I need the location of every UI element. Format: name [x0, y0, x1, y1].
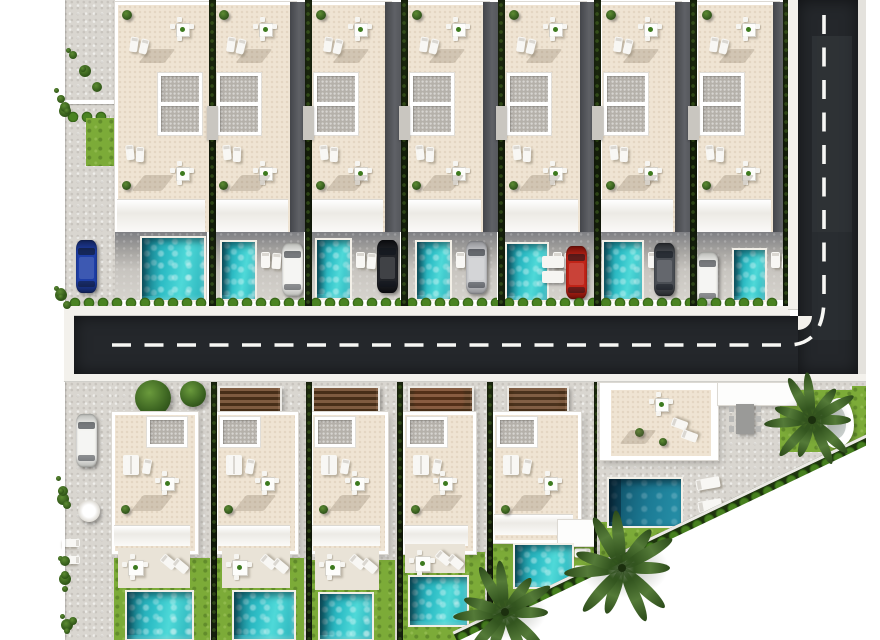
sun-lounger [680, 429, 698, 443]
table-plant [746, 27, 751, 32]
shrub [69, 617, 77, 625]
pool-shadow [515, 545, 531, 583]
bed-split [130, 456, 132, 474]
chair [226, 562, 231, 567]
lounger-pillow [422, 38, 428, 42]
potted-plant [219, 10, 229, 20]
site-edge-wall [62, 0, 65, 306]
sun-lounger [129, 37, 139, 53]
cast-shadow [131, 495, 174, 511]
lounger-pillow [368, 254, 375, 257]
lounger-pillow [137, 148, 143, 151]
chair [756, 426, 761, 432]
chair [355, 17, 360, 22]
plot-separator [690, 0, 697, 306]
pool-shadow [222, 242, 232, 295]
roof-front-band [504, 199, 578, 233]
chair [446, 24, 451, 29]
skylight-pane [500, 420, 534, 444]
lounger-pillow [273, 559, 280, 566]
car-red [566, 246, 587, 299]
dining-set [226, 554, 252, 580]
villa-building [212, 2, 296, 238]
chair [364, 478, 369, 483]
skylight-pane [413, 106, 451, 132]
lounger-pillow [682, 430, 687, 438]
lounger-pillow [448, 555, 455, 562]
table-plant [548, 481, 553, 486]
lounger-pillow [326, 38, 332, 42]
carport-pergola [312, 386, 380, 415]
lounger-pillow [529, 39, 536, 43]
table-plant [420, 561, 425, 566]
chair [755, 168, 760, 173]
chair [170, 24, 175, 29]
dining-set [255, 471, 279, 495]
lounger-pillow [427, 148, 433, 151]
dining-table [176, 23, 190, 37]
sun-lounger [522, 458, 532, 474]
potted-plant [122, 10, 132, 20]
chair [355, 36, 360, 41]
shrub [56, 476, 61, 481]
villa-building [215, 412, 298, 554]
chair [743, 161, 748, 166]
chair [557, 478, 562, 483]
sun-lounger [426, 147, 435, 162]
roof-front-band [407, 199, 481, 233]
lounger-pillow [336, 39, 343, 43]
dining-table [325, 560, 341, 576]
potted-plant [122, 181, 131, 190]
shrub [58, 488, 64, 494]
chair [453, 36, 458, 41]
shrub [63, 501, 71, 509]
site-mask-right [866, 0, 880, 452]
lounger-pillow [142, 39, 149, 43]
dining-set [170, 17, 194, 41]
car-roof [569, 263, 584, 285]
party-wall [207, 106, 218, 140]
swimming-pool [315, 238, 352, 300]
lounger-pillow [234, 148, 240, 151]
villa-building [115, 2, 213, 238]
potted-plant [224, 505, 233, 514]
villa-building [695, 2, 779, 238]
chair [189, 24, 194, 29]
swimming-pool [220, 240, 257, 301]
sun-lounger [222, 145, 232, 161]
sun-lounger [415, 145, 425, 161]
pool-shadow [604, 242, 615, 295]
bed-split [420, 456, 422, 474]
table-plant [358, 27, 363, 32]
chair [345, 478, 350, 483]
potted-plant [411, 505, 420, 514]
roof-front-band [404, 525, 468, 546]
sun-lounger [233, 147, 242, 162]
skylight-pane [317, 76, 355, 102]
chair [170, 168, 175, 173]
garden-pool [125, 590, 194, 640]
table-plant [456, 27, 461, 32]
roof-skylight [507, 73, 551, 135]
cast-shadow [712, 175, 755, 191]
corner-roof-terrace [608, 387, 714, 459]
palm-frond [616, 565, 651, 623]
pool-shadow [234, 592, 251, 635]
dining-table [742, 23, 756, 37]
deck-box [542, 271, 564, 283]
sidewalk-vertical [788, 0, 798, 310]
shrub [54, 88, 59, 93]
lounger-pillow [76, 540, 79, 546]
sun-lounger [319, 145, 329, 161]
chair [550, 36, 555, 41]
chair [260, 36, 265, 41]
garden-pool [408, 575, 469, 627]
chair [453, 17, 458, 22]
lounger-pillow [320, 146, 326, 150]
swimming-pool [140, 236, 206, 302]
plot-separator [498, 0, 505, 306]
lounger-pillow [698, 502, 704, 512]
car-windshield [699, 260, 716, 267]
dining-table [128, 560, 144, 576]
cast-shadow [422, 175, 465, 191]
villa-building [310, 412, 388, 554]
sun-lounger [271, 253, 281, 270]
potted-plant [702, 181, 711, 190]
chair [656, 392, 661, 397]
car-windshield [78, 422, 95, 429]
lounger-pillow [273, 254, 280, 257]
chair [430, 558, 435, 563]
lounger-pillow [436, 551, 443, 558]
chair [545, 471, 550, 476]
site-edge-wall [62, 382, 65, 640]
car-windshield [656, 251, 673, 258]
shrub [92, 82, 102, 92]
plot-separator [306, 382, 312, 640]
chair [234, 554, 239, 559]
parasol [78, 500, 100, 522]
dining-table [351, 477, 365, 491]
sun-lounger [609, 145, 619, 161]
roof-skylight [407, 417, 447, 447]
car-windshield [78, 248, 95, 255]
dining-set [155, 471, 179, 495]
sun-bed [226, 455, 242, 475]
skylight-pane [223, 420, 257, 444]
car-roof [469, 258, 484, 280]
skylight-pane [510, 106, 548, 132]
sun-lounger [620, 147, 629, 162]
palm-frond [618, 563, 669, 612]
chair [756, 416, 761, 422]
cast-shadow [234, 495, 277, 511]
chair [562, 168, 567, 173]
main-road [74, 316, 858, 374]
skylight-pane [161, 106, 199, 132]
corner-pool [607, 477, 683, 528]
potted-plant [121, 505, 130, 514]
lounger-pillow [717, 148, 723, 151]
roof-front-band [114, 525, 190, 546]
chair [319, 562, 324, 567]
shrub [58, 294, 64, 300]
shrub [63, 301, 71, 309]
chair [177, 161, 182, 166]
roof-skylight [700, 73, 744, 135]
dining-table [261, 477, 275, 491]
potted-plant [702, 10, 712, 20]
skylight-pane [220, 76, 258, 102]
chair [743, 17, 748, 22]
chair [260, 161, 265, 166]
carport-pergola [507, 386, 569, 415]
lounger-pillow [145, 460, 151, 464]
shrub [62, 586, 68, 592]
chair [465, 24, 470, 29]
chair [645, 161, 650, 166]
shrub [57, 95, 65, 103]
shrub-cluster [56, 476, 72, 510]
bed-split [328, 456, 330, 474]
roof-front-band [697, 199, 771, 233]
car-white [76, 414, 97, 467]
dining-set [170, 161, 194, 185]
shrub [69, 51, 77, 59]
site-plan-render [0, 0, 880, 640]
car-windshield [284, 251, 301, 258]
carport-pergola [218, 386, 282, 415]
table-plant [237, 565, 242, 570]
roof-skylight [497, 417, 537, 447]
dining-set [253, 17, 277, 41]
chair [729, 406, 734, 412]
dining-set [433, 471, 457, 495]
potted-plant [509, 181, 518, 190]
plot-separator [211, 382, 217, 640]
dining-set [649, 392, 673, 416]
car-windshield [568, 254, 585, 261]
pool-shadow [317, 240, 327, 294]
car-rear-window [379, 281, 396, 287]
car-white [282, 243, 303, 296]
table-plant [443, 481, 448, 486]
dining-set [409, 550, 435, 576]
dining-table [549, 23, 563, 37]
chair [668, 399, 673, 404]
roof-skylight [147, 417, 187, 447]
villa-building [502, 2, 586, 238]
roof-skylight [217, 73, 261, 135]
deck-box [542, 256, 564, 268]
chair [260, 17, 265, 22]
sidewalk-bottom [64, 374, 866, 382]
skylight-pane [703, 76, 741, 102]
dining-set [319, 554, 345, 580]
dining-set [446, 17, 470, 41]
cast-shadow [326, 175, 369, 191]
sun-lounger [366, 253, 376, 270]
lounger-pillow [331, 148, 337, 151]
plot-separator [397, 382, 403, 640]
cast-shadow [329, 495, 372, 511]
cast-shadow [519, 175, 562, 191]
lounger-pillow [706, 146, 712, 150]
left-curb [64, 308, 74, 382]
sun-lounger [323, 37, 333, 53]
plot-separator [487, 382, 493, 640]
shrub [80, 66, 86, 72]
chair [367, 168, 372, 173]
car-roof [380, 257, 395, 279]
car-rear-window [78, 281, 95, 287]
chair [255, 478, 260, 483]
sun-lounger [136, 147, 145, 162]
skylight-pane [317, 106, 355, 132]
chair [638, 168, 643, 173]
roof-skylight [314, 73, 358, 135]
cast-shadow [616, 175, 659, 191]
roof-skylight [220, 417, 260, 447]
table-plant [553, 27, 558, 32]
sun-lounger [271, 557, 289, 574]
lounger-pillow [76, 557, 79, 563]
chair [440, 471, 445, 476]
dining-table [544, 477, 558, 491]
skylight-pane [413, 76, 451, 102]
dining-table [354, 23, 368, 37]
sun-lounger [716, 147, 725, 162]
chair [656, 411, 661, 416]
chair [543, 24, 548, 29]
roof-front-band [312, 525, 380, 546]
party-wall [303, 106, 314, 140]
sun-lounger [142, 458, 152, 474]
shrub-cluster [58, 556, 72, 600]
chair [189, 168, 194, 173]
sun-lounger [523, 147, 532, 162]
chair [177, 17, 182, 22]
shrub [64, 108, 70, 114]
dining-set [543, 17, 567, 41]
sun-lounger [516, 37, 526, 53]
lounger-pillow [525, 460, 531, 464]
car-blue [76, 240, 97, 293]
lounger-pillow [223, 146, 229, 150]
chair [729, 416, 734, 422]
pool-shadow [734, 250, 743, 296]
lounger-pillow [248, 460, 254, 464]
plot-separator [594, 0, 601, 306]
chair [327, 554, 332, 559]
chair [143, 562, 148, 567]
sun-bed [321, 455, 337, 475]
table-plant [133, 565, 138, 570]
villa-building [402, 412, 476, 554]
chair [352, 471, 357, 476]
lounger-pillow [161, 555, 168, 562]
roof-skylight [315, 417, 355, 447]
shrub-cluster [60, 614, 78, 638]
lounger-pillow [621, 148, 627, 151]
dining-set [345, 471, 369, 495]
table-plant [180, 171, 185, 176]
car-roof [285, 260, 300, 282]
car-windshield [468, 249, 485, 256]
dining-set [638, 17, 662, 41]
lounger-pillow [712, 38, 718, 42]
sun-lounger [512, 145, 522, 161]
right-shoulder [858, 0, 866, 382]
chair [729, 426, 734, 432]
potted-plant [319, 505, 328, 514]
lounger-pillow [343, 460, 349, 464]
pool-shadow [127, 592, 145, 635]
road-shade [812, 36, 852, 232]
lounger-pillow [432, 39, 439, 43]
pool-patio [118, 548, 190, 588]
cast-shadow [620, 430, 657, 444]
chair [562, 24, 567, 29]
dining-table [415, 556, 431, 572]
plot-separator [401, 0, 408, 306]
lounger-pillow [696, 480, 702, 490]
shrub-cluster [54, 88, 74, 118]
potted-plant [659, 438, 667, 446]
car-roof [79, 257, 94, 279]
kidney-spa [820, 398, 854, 448]
car-black [377, 240, 398, 293]
chair [453, 161, 458, 166]
dining-table [644, 23, 658, 37]
chair [755, 24, 760, 29]
chair [253, 24, 258, 29]
sun-lounger [456, 252, 465, 268]
car-rear-window [78, 455, 95, 461]
sun-lounger [705, 145, 715, 161]
pool-shadow [410, 577, 426, 621]
sun-lounger [330, 147, 339, 162]
chair [130, 575, 135, 580]
lounger-pillow [350, 555, 357, 562]
potted-plant [606, 10, 616, 20]
bed-split [233, 456, 235, 474]
pool-shadow [320, 594, 335, 635]
table-plant [355, 481, 360, 486]
chair [538, 478, 543, 483]
potted-plant [412, 10, 422, 20]
table-plant [648, 27, 653, 32]
sun-lounger [356, 252, 365, 268]
chair [550, 17, 555, 22]
bed-split [510, 456, 512, 474]
chair [327, 575, 332, 580]
chair [262, 471, 267, 476]
corner-roof-wing [718, 383, 796, 405]
skylight-pane [607, 106, 645, 132]
garden-pool [232, 590, 296, 640]
sun-lounger [709, 37, 719, 53]
sun-lounger [446, 553, 464, 570]
shrub [64, 628, 70, 634]
lawn-patch [86, 118, 114, 166]
road-shade [812, 232, 852, 340]
skylight-pane [150, 420, 184, 444]
